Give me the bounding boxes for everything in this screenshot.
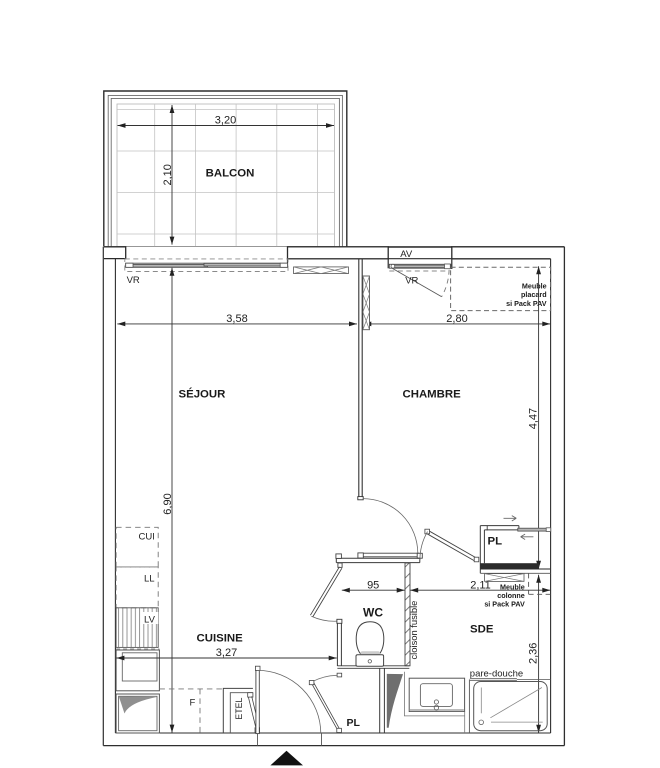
- svg-text:AV: AV: [400, 249, 413, 260]
- svg-text:3,20: 3,20: [215, 115, 236, 127]
- svg-text:Meuble: Meuble: [522, 281, 547, 290]
- svg-text:LL: LL: [144, 574, 155, 585]
- svg-text:ETEL: ETEL: [234, 697, 244, 719]
- svg-text:3,58: 3,58: [226, 313, 247, 325]
- svg-text:SÉJOUR: SÉJOUR: [179, 387, 226, 400]
- svg-text:PL: PL: [347, 717, 361, 729]
- svg-text:VR: VR: [405, 276, 418, 287]
- svg-text:95: 95: [367, 579, 379, 591]
- svg-text:4,47: 4,47: [528, 408, 540, 429]
- svg-text:F: F: [190, 698, 196, 709]
- svg-text:CHAMBRE: CHAMBRE: [403, 388, 462, 400]
- svg-text:VR: VR: [127, 275, 140, 286]
- svg-text:CUI: CUI: [139, 532, 155, 543]
- svg-text:BALCON: BALCON: [206, 168, 255, 180]
- svg-text:2,36: 2,36: [528, 643, 540, 664]
- svg-text:2,10: 2,10: [162, 164, 174, 185]
- svg-text:PL: PL: [488, 536, 503, 548]
- svg-text:WC: WC: [363, 606, 383, 620]
- svg-text:si Pack PAV: si Pack PAV: [506, 299, 547, 308]
- svg-text:SDE: SDE: [470, 623, 494, 635]
- svg-text:3,27: 3,27: [216, 647, 237, 659]
- svg-text:CUISINE: CUISINE: [197, 632, 244, 644]
- svg-text:2,80: 2,80: [446, 313, 467, 325]
- svg-text:pare-douche: pare-douche: [470, 669, 523, 680]
- svg-text:si Pack PAV: si Pack PAV: [484, 599, 525, 608]
- svg-text:cloison fusible: cloison fusible: [408, 601, 419, 660]
- svg-text:LV: LV: [144, 614, 156, 625]
- svg-text:6,90: 6,90: [162, 493, 174, 514]
